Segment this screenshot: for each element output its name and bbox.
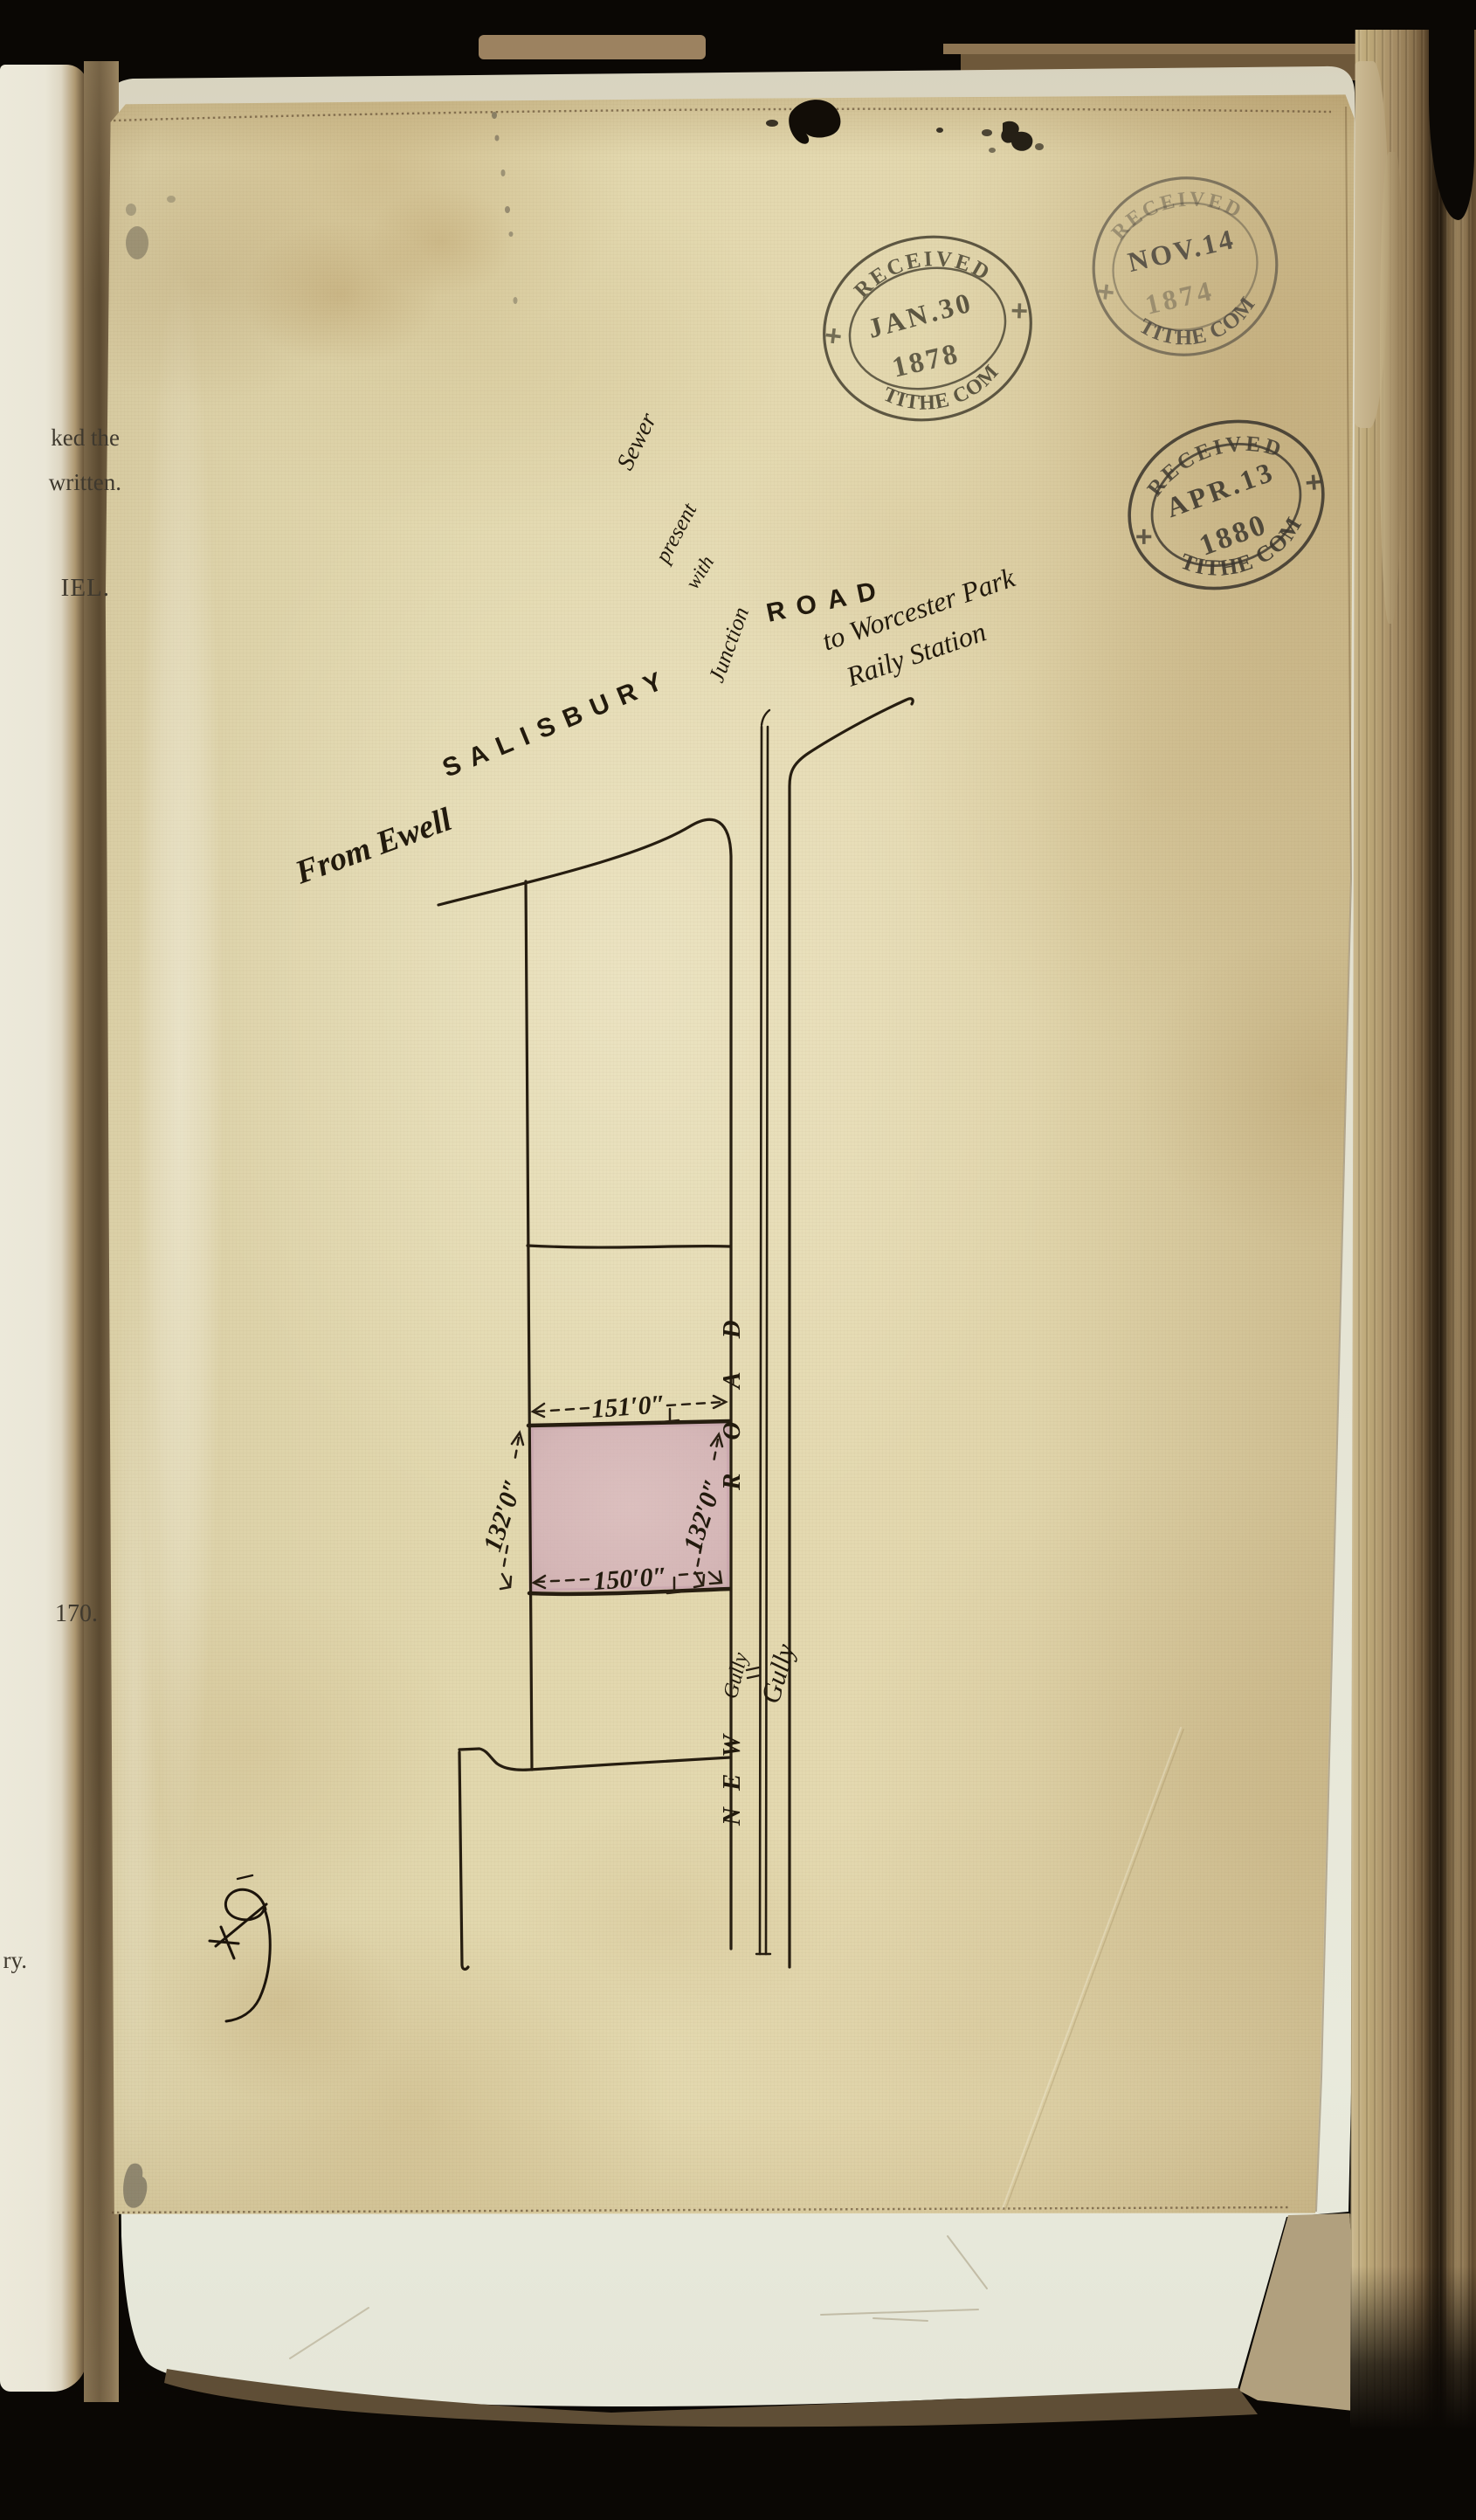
svg-text:Sewer: Sewer bbox=[611, 409, 662, 474]
svg-text:150′0″: 150′0″ bbox=[592, 1562, 668, 1596]
svg-text:151′0″: 151′0″ bbox=[590, 1390, 666, 1424]
svg-text:Junction: Junction bbox=[703, 604, 754, 686]
svg-text:with: with bbox=[681, 552, 718, 593]
svg-text:Gully: Gully bbox=[755, 1640, 801, 1707]
svg-text:NEW: NEW bbox=[718, 1718, 746, 1826]
svg-text:ked the: ked the bbox=[51, 425, 120, 451]
svg-text:170.: 170. bbox=[55, 1600, 98, 1627]
svg-text:1874: 1874 bbox=[1142, 274, 1217, 321]
svg-text:ry.: ry. bbox=[3, 1947, 28, 1973]
svg-text:From Ewell: From Ewell bbox=[290, 801, 457, 892]
svg-text:Gully: Gully bbox=[720, 1650, 753, 1701]
svg-text:SALISBURY: SALISBURY bbox=[438, 663, 676, 783]
svg-text:1878: 1878 bbox=[889, 338, 962, 384]
svg-text:IEL.: IEL. bbox=[61, 574, 110, 602]
svg-text:written.: written. bbox=[49, 469, 121, 495]
svg-text:132′0″: 132′0″ bbox=[478, 1475, 528, 1555]
svg-text:JAN.30: JAN.30 bbox=[865, 286, 976, 344]
svg-text:NOV.14: NOV.14 bbox=[1125, 223, 1238, 278]
svg-text:present: present bbox=[651, 499, 702, 569]
svg-text:ROAD: ROAD bbox=[718, 1287, 746, 1491]
